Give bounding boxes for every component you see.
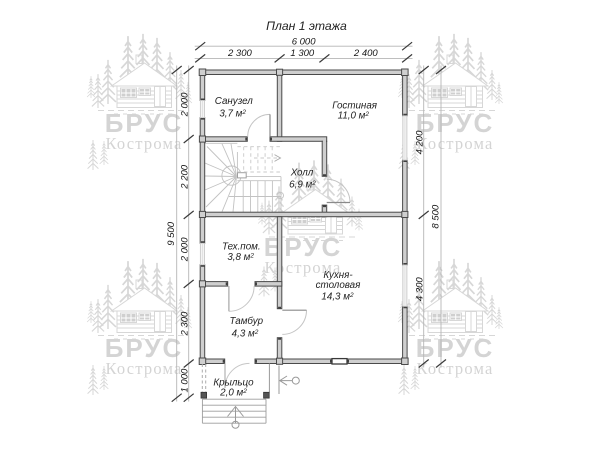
svg-text:4 200: 4 200	[415, 130, 426, 154]
svg-text:2 300: 2 300	[227, 48, 252, 59]
svg-text:столовая: столовая	[316, 280, 362, 291]
svg-text:Холл: Холл	[290, 168, 314, 179]
svg-text:11,0 м2: 11,0 м2	[338, 110, 370, 121]
svg-text:План 1 этажа: План 1 этажа	[266, 19, 347, 33]
svg-text:Тамбур: Тамбур	[230, 316, 264, 327]
svg-text:4 300: 4 300	[415, 277, 426, 301]
svg-text:2,0 м2: 2,0 м2	[219, 387, 247, 398]
svg-text:6 000: 6 000	[292, 37, 316, 48]
svg-text:2 200: 2 200	[179, 164, 190, 189]
svg-text:4,3 м2: 4,3 м2	[232, 328, 259, 339]
svg-text:2 400: 2 400	[353, 48, 378, 59]
svg-text:3,7 м2: 3,7 м2	[219, 108, 246, 119]
svg-text:3,8 м2: 3,8 м2	[227, 252, 254, 263]
svg-text:14,3 м2: 14,3 м2	[321, 291, 354, 302]
svg-text:1 300: 1 300	[290, 48, 314, 59]
svg-text:1 000: 1 000	[179, 368, 190, 392]
svg-text:Тех.пом.: Тех.пом.	[222, 241, 261, 252]
svg-text:2 300: 2 300	[179, 311, 190, 336]
svg-text:6,9 м2: 6,9 м2	[289, 179, 316, 190]
svg-text:9 500: 9 500	[166, 221, 177, 245]
svg-text:Санузел: Санузел	[215, 96, 253, 107]
svg-text:2 000: 2 000	[179, 92, 190, 117]
svg-text:2 000: 2 000	[179, 237, 190, 262]
svg-text:8 500: 8 500	[431, 204, 442, 228]
